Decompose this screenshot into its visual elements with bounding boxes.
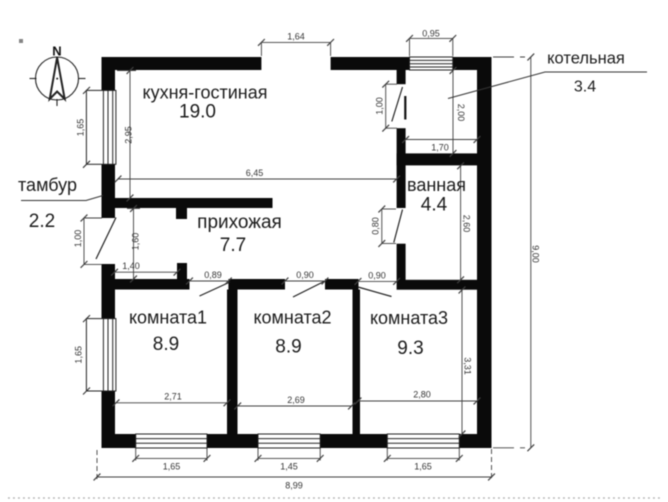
svg-text:3,31: 3,31 bbox=[463, 357, 473, 375]
svg-text:9,00: 9,00 bbox=[531, 245, 541, 263]
svg-text:1,65: 1,65 bbox=[414, 462, 432, 472]
svg-text:2.2: 2.2 bbox=[29, 211, 55, 232]
svg-text:1,60: 1,60 bbox=[131, 233, 141, 251]
svg-text:2,71: 2,71 bbox=[164, 391, 182, 401]
svg-text:1,65: 1,65 bbox=[74, 346, 84, 364]
svg-text:8.9: 8.9 bbox=[153, 334, 179, 355]
svg-text:2,80: 2,80 bbox=[413, 390, 431, 400]
svg-text:0,80: 0,80 bbox=[371, 217, 381, 235]
svg-text:1,45: 1,45 bbox=[280, 462, 298, 472]
svg-text:прихожая: прихожая bbox=[197, 212, 282, 233]
svg-text:8,99: 8,99 bbox=[285, 481, 303, 491]
svg-text:0,90: 0,90 bbox=[296, 270, 314, 280]
svg-text:0,90: 0,90 bbox=[368, 270, 386, 280]
svg-text:N: N bbox=[52, 44, 61, 59]
svg-text:кухня-гостиная: кухня-гостиная bbox=[143, 83, 268, 103]
svg-text:2,00: 2,00 bbox=[456, 104, 466, 122]
svg-text:2,60: 2,60 bbox=[462, 215, 472, 233]
svg-text:9.3: 9.3 bbox=[397, 338, 423, 359]
svg-text:19.0: 19.0 bbox=[179, 102, 216, 123]
svg-text:1,00: 1,00 bbox=[73, 230, 83, 248]
svg-text:3.4: 3.4 bbox=[574, 79, 596, 96]
svg-text:комната2: комната2 bbox=[253, 308, 331, 328]
svg-text:8.9: 8.9 bbox=[275, 337, 301, 358]
svg-text:комната3: комната3 bbox=[370, 308, 448, 328]
svg-text:0,89: 0,89 bbox=[204, 270, 222, 280]
svg-text:7.7: 7.7 bbox=[220, 235, 246, 256]
svg-text:2,69: 2,69 bbox=[287, 395, 305, 405]
svg-text:комната1: комната1 bbox=[129, 308, 207, 328]
svg-text:6,45: 6,45 bbox=[246, 168, 264, 178]
svg-text:1,00: 1,00 bbox=[375, 97, 385, 115]
svg-text:1,40: 1,40 bbox=[122, 261, 140, 271]
svg-text:2,95: 2,95 bbox=[124, 126, 134, 144]
svg-text:1,65: 1,65 bbox=[76, 119, 86, 137]
svg-text:4.4: 4.4 bbox=[421, 195, 448, 216]
svg-text:тамбур: тамбур bbox=[18, 175, 77, 195]
svg-text:1,70: 1,70 bbox=[431, 143, 449, 153]
svg-text:ванная: ванная bbox=[407, 175, 466, 195]
svg-text:0,95: 0,95 bbox=[422, 29, 440, 39]
svg-text:1,64: 1,64 bbox=[287, 32, 305, 42]
svg-text:котельная: котельная bbox=[547, 50, 625, 68]
svg-text:1,65: 1,65 bbox=[163, 462, 181, 472]
